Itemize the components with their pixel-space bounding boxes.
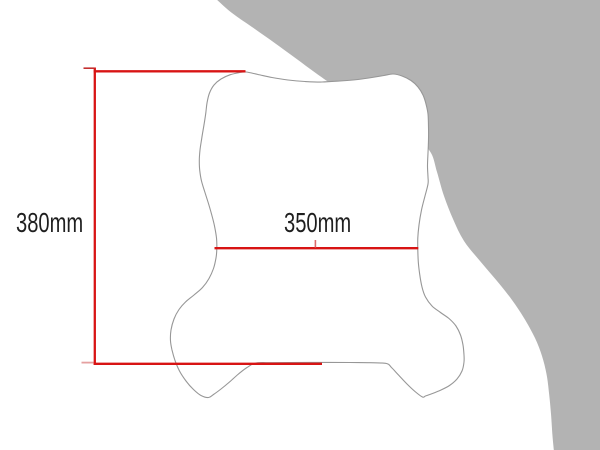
height-dimension-label: 380mm bbox=[16, 209, 83, 237]
width-dimension-label: 350mm bbox=[284, 209, 351, 237]
diagram-canvas: 380mm 350mm bbox=[0, 0, 600, 450]
